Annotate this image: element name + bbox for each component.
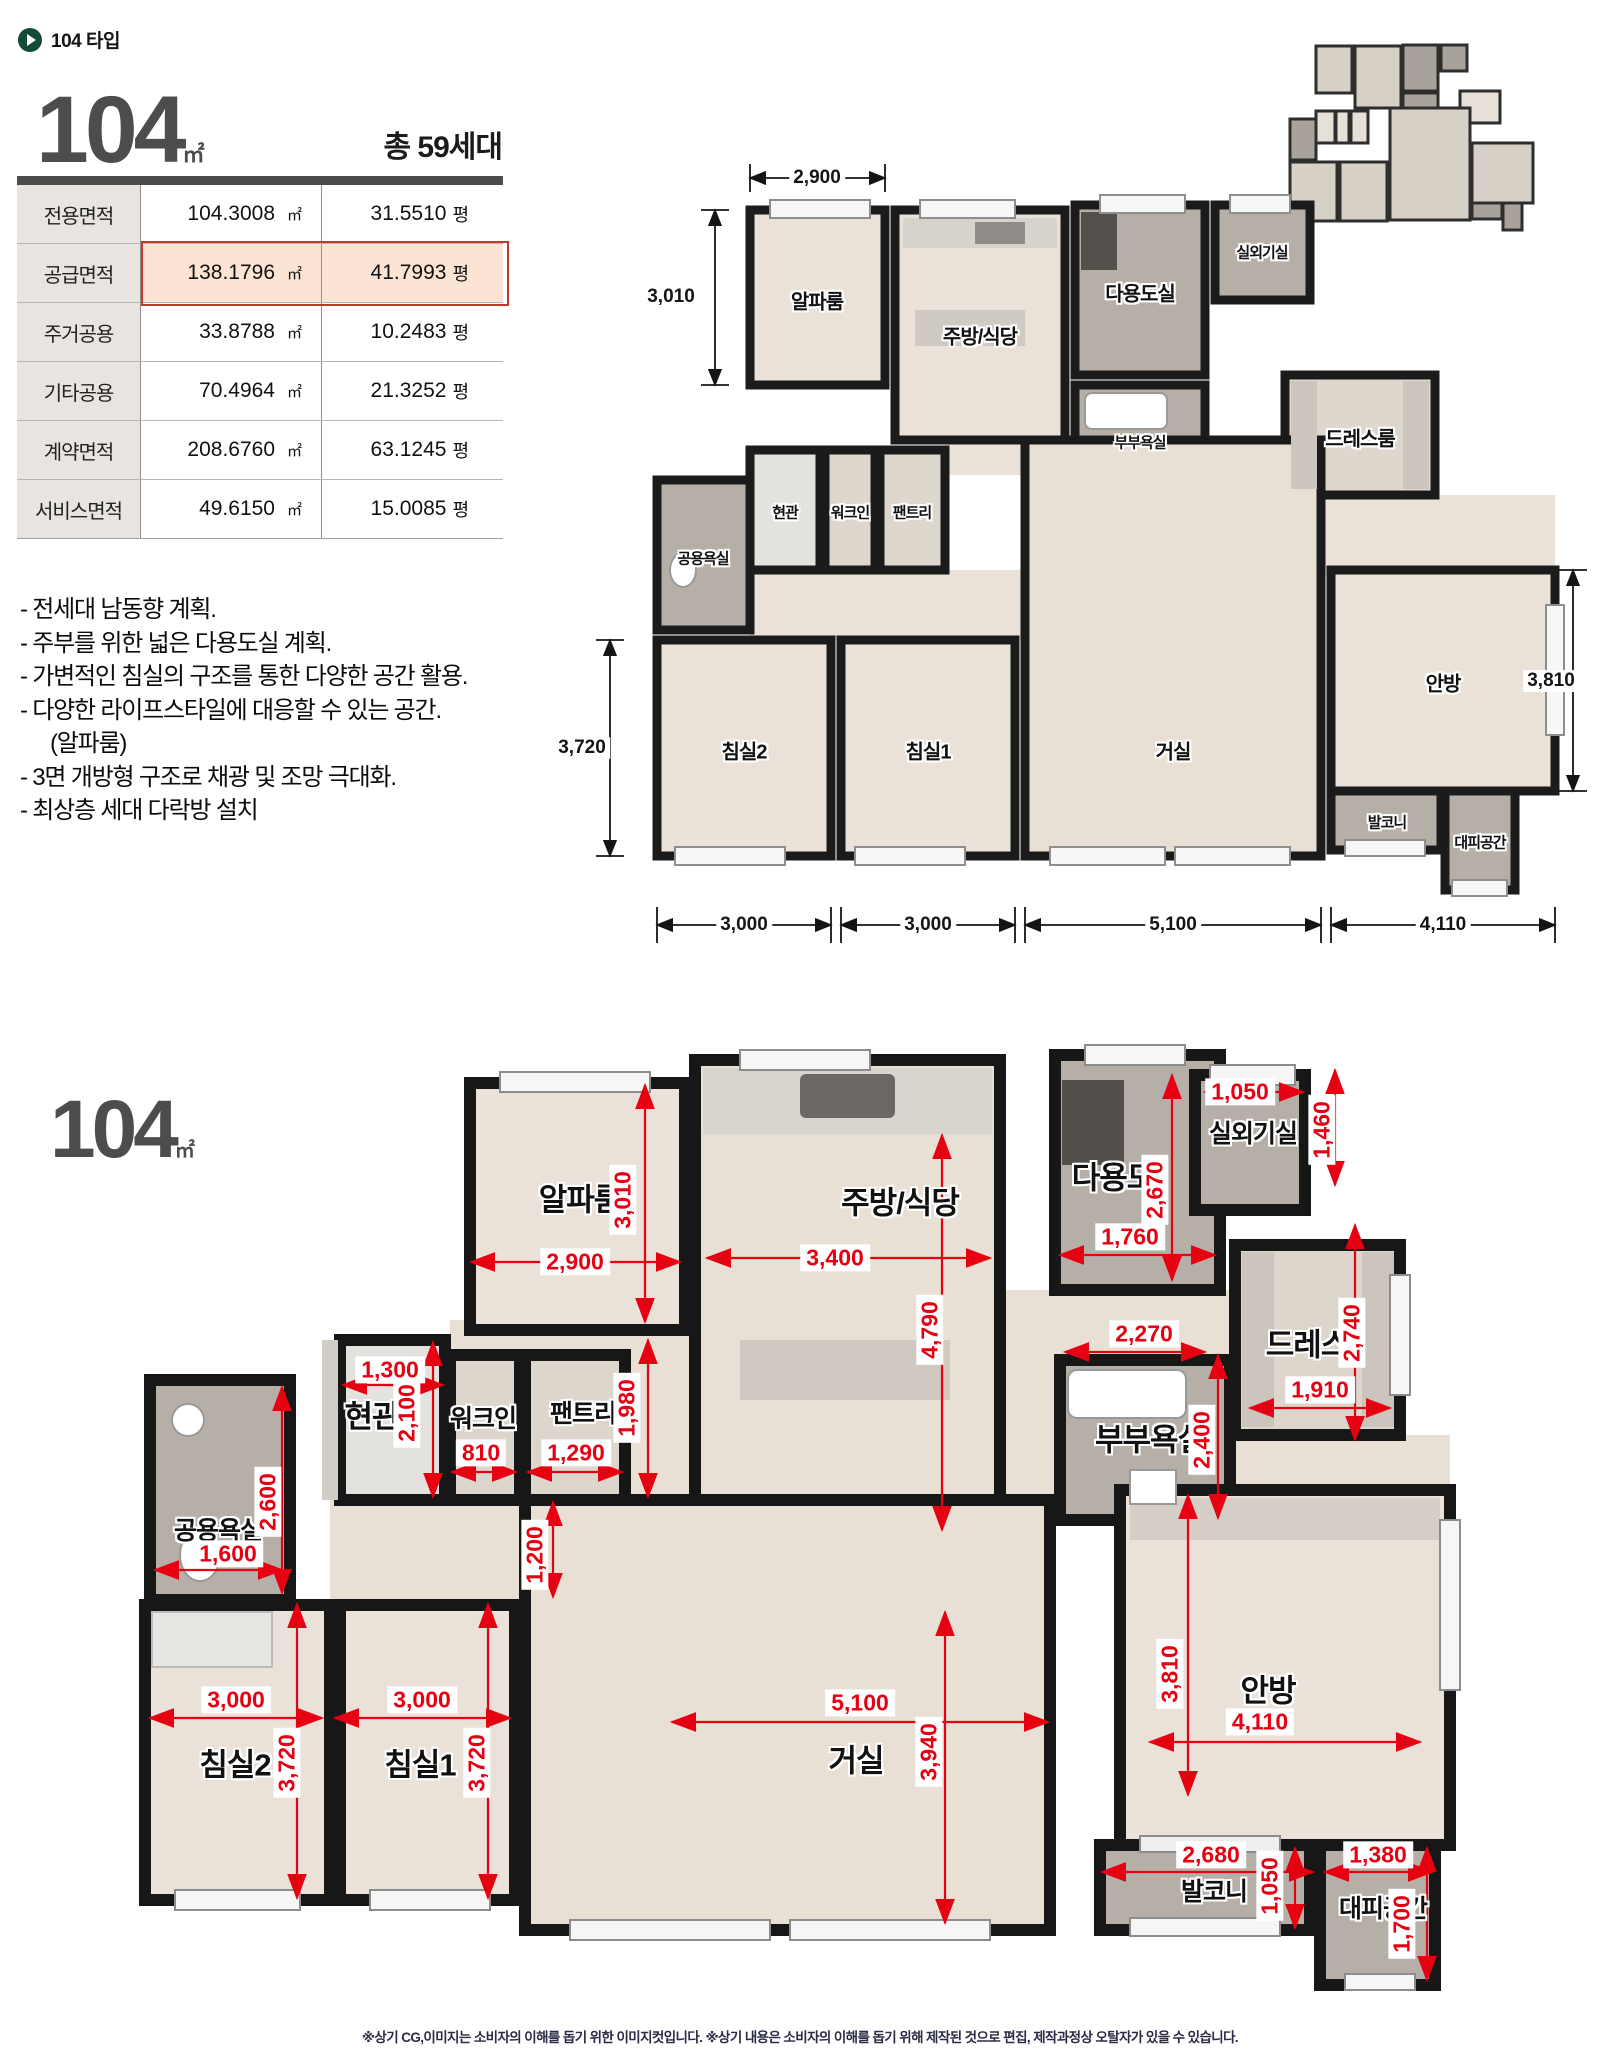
- table-row-highlighted: 공급면적 138.1796㎡ 41.7993평: [17, 243, 503, 302]
- top-dim-master-height: 3,810: [1523, 670, 1579, 692]
- title-divider-bar: [17, 176, 503, 185]
- bot-dim-utility-width: 1,760: [1095, 1223, 1165, 1250]
- page-header: 104 타입: [18, 26, 120, 53]
- top-room-label-bed1: 침실1: [906, 736, 951, 765]
- bot-dim-cbath-height: 2,600: [254, 1467, 281, 1537]
- type-title-row: 104㎡ 총 59세대: [36, 58, 502, 170]
- top-dim-bottom-1: 3,000: [716, 914, 772, 936]
- bot-room-label-outdoor: 실외기실: [1209, 1114, 1297, 1150]
- bot-dim-entrance-height: 2,100: [393, 1378, 420, 1448]
- bot-dim-kitchen-height: 4,790: [916, 1295, 943, 1365]
- bot-room-label-kitchen: 주방/식당: [841, 1178, 959, 1223]
- bot-dim-refuge-width: 1,380: [1343, 1841, 1413, 1868]
- bot-dim-refuge-height: 1,700: [1388, 1889, 1415, 1959]
- bot-dim-dress-width: 1,910: [1285, 1376, 1355, 1403]
- feature-item: (알파룸): [20, 727, 500, 761]
- type-number: 104: [36, 77, 183, 183]
- bot-dim-mbath-width: 2,270: [1109, 1320, 1179, 1347]
- brochure-page: 104 타입 104㎡ 총 59세대 전용면적 104.3008㎡ 31.551…: [0, 0, 1600, 2063]
- bot-dim-outdoor-height: 1,460: [1308, 1095, 1335, 1165]
- feature-item: - 주부를 위한 넓은 다용도실 계획.: [20, 627, 500, 661]
- bot-dim-balcony-width: 2,680: [1176, 1841, 1246, 1868]
- feature-item: - 최상층 세대 다락방 설치: [20, 794, 500, 828]
- row-label: 서비스면적: [17, 480, 141, 538]
- top-room-label-outdoor: 실외기실: [1236, 242, 1287, 263]
- bot-room-label-bed2: 침실2: [199, 1740, 270, 1785]
- feature-list: - 전세대 남동향 계획. - 주부를 위한 넓은 다용도실 계획. - 가변적…: [20, 593, 500, 828]
- bot-room-label-pantry: 팬트리: [550, 1394, 616, 1430]
- row-sqm: 33.8788㎡: [141, 303, 322, 361]
- top-dim-bottom-2: 3,000: [900, 914, 956, 936]
- row-label: 기타공용: [17, 362, 141, 420]
- bot-room-label-dress: 드레스: [1266, 1320, 1349, 1365]
- bot-room-label-bed1: 침실1: [384, 1740, 455, 1785]
- top-room-label-kitchen: 주방/식당: [943, 321, 1017, 350]
- bottom-floor-plan: 알파룸 주방/식당 다용도 실외기실 드레스 부부욕실 현관 워크인 팬트리 공…: [100, 1040, 1500, 2025]
- table-row: 기타공용 70.4964㎡ 21.3252평: [17, 361, 503, 420]
- row-label: 주거공용: [17, 303, 141, 361]
- top-dim-bottom-4: 4,110: [1416, 914, 1471, 936]
- bot-dim-living-height: 3,940: [915, 1717, 942, 1787]
- row-sqm: 70.4964㎡: [141, 362, 322, 420]
- row-pyeong: 21.3252평: [322, 362, 503, 420]
- bot-dim-alpha-height: 3,010: [609, 1165, 636, 1235]
- row-sqm: 138.1796㎡: [141, 244, 322, 302]
- row-pyeong: 63.1245평: [322, 421, 503, 479]
- bot-room-label-balcony: 발코니: [1181, 1872, 1247, 1908]
- bot-dim-living-width: 5,100: [825, 1689, 895, 1716]
- bot-room-label-living: 거실: [828, 1736, 883, 1781]
- bot-dim-cbath-width: 1,600: [193, 1540, 263, 1567]
- top-room-label-balcony: 발코니: [1368, 812, 1406, 833]
- top-dim-alpha-width: 2,900: [789, 167, 845, 189]
- bot-dim-hall-height: 1,200: [521, 1520, 548, 1590]
- bot-dim-master-width: 4,110: [1226, 1708, 1294, 1735]
- table-row: 전용면적 104.3008㎡ 31.5510평: [17, 185, 503, 243]
- bot-dim-walkin-width: 810: [456, 1439, 506, 1466]
- page-footer-disclaimer: ※상기 CG,이미지는 소비자의 이해를 돕기 위한 이미지컷입니다. ※상기 …: [0, 2026, 1600, 2046]
- top-room-label-living: 거실: [1156, 736, 1191, 765]
- top-room-label-pantry: 팬트리: [893, 502, 931, 523]
- bot-dim-utility-height: 2,670: [1141, 1155, 1168, 1225]
- row-pyeong: 10.2483평: [322, 303, 503, 361]
- row-label: 공급면적: [17, 244, 141, 302]
- bot-dim-bed2-height: 3,720: [273, 1728, 300, 1798]
- bot-dim-alpha-width: 2,900: [540, 1248, 610, 1275]
- top-room-label-refuge: 대피공간: [1454, 832, 1505, 853]
- row-sqm: 49.6150㎡: [141, 480, 322, 538]
- bot-dim-dress-height: 2,740: [1338, 1298, 1365, 1368]
- top-room-label-master-bath: 부부욕실: [1114, 432, 1165, 453]
- bot-dim-pantry-height: 1,980: [613, 1373, 640, 1443]
- bottom-floor-plan-graphic: [100, 1040, 1500, 2025]
- type-tag-label: 104 타입: [51, 26, 120, 53]
- feature-item: - 가변적인 침실의 구조를 통한 다양한 공간 활용.: [20, 660, 500, 694]
- bot-dim-kitchen-width: 3,400: [800, 1244, 870, 1271]
- bot-dim-bed1-width: 3,000: [387, 1686, 457, 1713]
- total-units: 총 59세대: [383, 122, 502, 166]
- table-row: 서비스면적 49.6150㎡ 15.0085평: [17, 479, 503, 538]
- bot-dim-mbath-height: 2,400: [1188, 1405, 1215, 1475]
- row-sqm: 208.6760㎡: [141, 421, 322, 479]
- play-icon: [18, 28, 42, 52]
- row-sqm: 104.3008㎡: [141, 185, 322, 243]
- top-room-label-alpha: 알파룸: [791, 286, 843, 315]
- top-dim-bottom-3: 5,100: [1145, 914, 1201, 936]
- bot-dim-outdoor-width: 1,050: [1205, 1078, 1275, 1105]
- row-label: 전용면적: [17, 185, 141, 243]
- table-row: 주거공용 33.8788㎡ 10.2483평: [17, 302, 503, 361]
- top-room-label-walkin: 워크인: [831, 502, 869, 523]
- top-dim-alpha-height: 3,010: [643, 286, 699, 308]
- feature-item: - 다양한 라이프스타일에 대응할 수 있는 공간.: [20, 694, 500, 728]
- type-unit: ㎡: [183, 142, 205, 167]
- row-pyeong: 41.7993평: [322, 244, 503, 302]
- bot-dim-balcony-height: 1,050: [1256, 1851, 1283, 1921]
- row-label: 계약면적: [17, 421, 141, 479]
- top-floor-plan: 알파룸 주방/식당 다용도실 실외기실 드레스룸 부부욕실 현관 워크인 팬트리…: [555, 150, 1600, 960]
- bot-room-label-master: 안방: [1240, 1666, 1295, 1711]
- top-room-label-utility: 다용도실: [1105, 278, 1175, 307]
- feature-item: - 전세대 남동향 계획.: [20, 593, 500, 627]
- row-pyeong: 31.5510평: [322, 185, 503, 243]
- bot-dim-master-height: 3,810: [1156, 1639, 1183, 1709]
- area-summary-table: 전용면적 104.3008㎡ 31.5510평 공급면적 138.1796㎡ 4…: [17, 185, 503, 539]
- bot-dim-bed2-width: 3,000: [201, 1686, 271, 1713]
- top-room-label-entrance: 현관: [772, 502, 798, 523]
- top-room-label-master: 안방: [1426, 668, 1461, 697]
- bot-room-label-entrance: 현관: [344, 1392, 399, 1437]
- type-title: 104㎡: [36, 92, 205, 170]
- top-room-label-dress: 드레스룸: [1325, 423, 1395, 452]
- top-dim-bed-height: 3,720: [554, 737, 610, 759]
- top-room-label-bed2: 침실2: [722, 736, 767, 765]
- table-row: 계약면적 208.6760㎡ 63.1245평: [17, 420, 503, 479]
- feature-item: - 3면 개방형 구조로 채광 및 조망 극대화.: [20, 761, 500, 795]
- top-room-label-common-bath: 공용욕실: [677, 548, 728, 569]
- bot-dim-pantry-width: 1,290: [541, 1439, 611, 1466]
- bot-room-label-walkin: 워크인: [450, 1399, 516, 1435]
- bot-dim-bed1-height: 3,720: [463, 1728, 490, 1798]
- row-pyeong: 15.0085평: [322, 480, 503, 538]
